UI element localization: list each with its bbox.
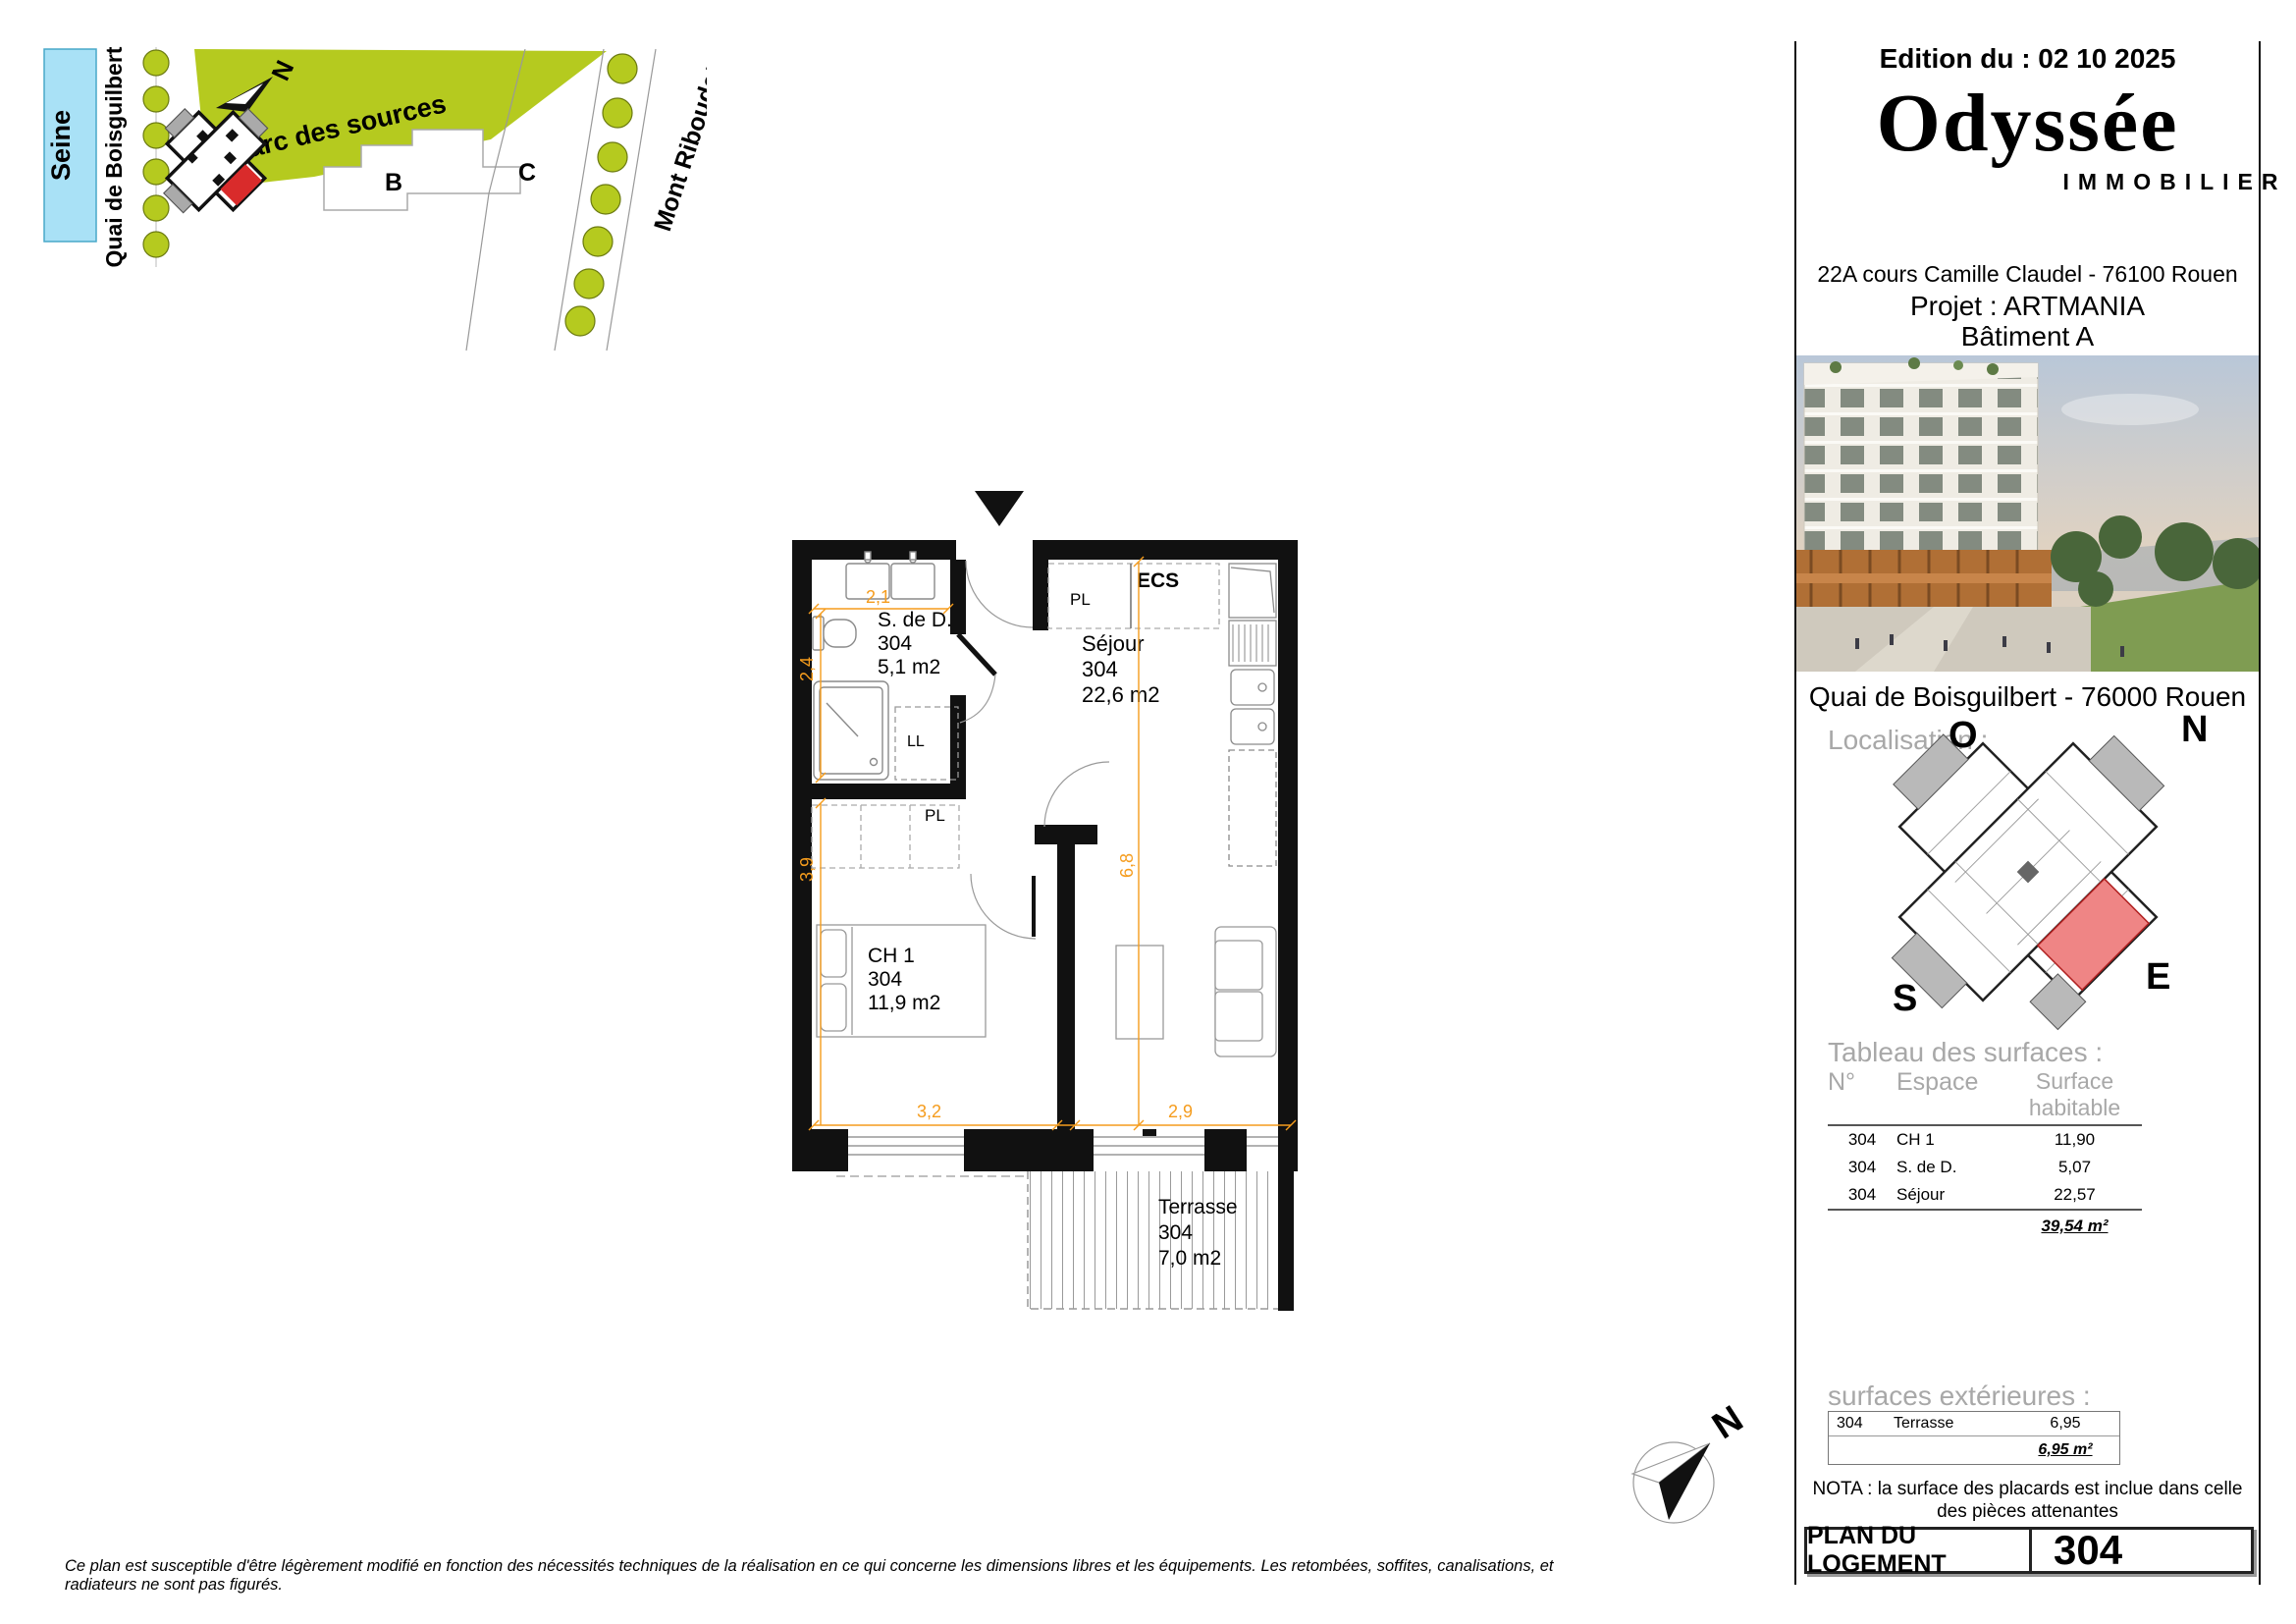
svg-text:7,0 m2: 7,0 m2 xyxy=(1158,1247,1221,1270)
svg-text:22,6 m2: 22,6 m2 xyxy=(1082,682,1160,707)
exterieures-total: 6,95 m² xyxy=(2011,1441,2119,1459)
slider-handle xyxy=(1143,1129,1156,1136)
svg-text:304: 304 xyxy=(868,968,902,991)
coffee-table xyxy=(1116,946,1163,1039)
surfaces-title: Tableau des surfaces : xyxy=(1828,1037,2103,1068)
dimension-labels: 2,1 2,4 3,9 6,8 3,2 2,9 xyxy=(797,587,1193,1121)
terrasse-area xyxy=(1028,1171,1278,1309)
svg-text:6,8: 6,8 xyxy=(1117,853,1137,878)
svg-text:Terrasse: Terrasse xyxy=(1158,1196,1238,1218)
col-espace: Espace xyxy=(1896,1068,2009,1121)
compass-n-label: N xyxy=(1705,1398,1750,1447)
sofa xyxy=(1215,927,1276,1056)
tree-row-right xyxy=(565,54,637,336)
agency-logo-sub: IMMOBILIER xyxy=(1796,169,2296,195)
table-row: 304 CH 1 11,90 xyxy=(1828,1126,2142,1154)
floor-plan-document: Seine Quai de Boisguilbert Parc des sour… xyxy=(0,0,2296,1624)
edition-date: Edition du : 02 10 2025 xyxy=(1796,43,2259,75)
svg-text:3,9: 3,9 xyxy=(797,857,817,882)
localisation-plan xyxy=(1863,713,2221,1032)
exterieures-title: surfaces extérieures : xyxy=(1828,1380,2091,1412)
kitchen-units xyxy=(1229,564,1276,866)
disclaimer-text: Ce plan est susceptible d'être légèremen… xyxy=(65,1557,1596,1595)
building-name: Bâtiment A xyxy=(1796,321,2259,352)
svg-text:11,9 m2: 11,9 m2 xyxy=(868,992,940,1014)
building-photo xyxy=(1796,355,2259,672)
building-b-label: B xyxy=(385,169,402,196)
sejour-label: Séjour 304 22,6 m2 xyxy=(1082,631,1160,707)
exterieures-table: 304 Terrasse 6,95 6,95 m² xyxy=(1828,1411,2120,1465)
svg-text:304: 304 xyxy=(878,632,912,655)
surfaces-table: N° Espace Surface habitable 304 CH 1 11,… xyxy=(1828,1068,2142,1242)
surfaces-header: N° Espace Surface habitable xyxy=(1828,1068,2142,1126)
mont-riboudet-label: Mont Riboudet xyxy=(649,62,707,235)
agency-logo: Odyssée xyxy=(1796,82,2259,165)
ecs-label: ECS xyxy=(1137,569,1179,592)
col-surface: Surface habitable xyxy=(2009,1068,2140,1121)
title-block-label: PLAN DU LOGEMENT xyxy=(1807,1530,2029,1571)
surfaces-total-row: 39,54 m² xyxy=(1828,1209,2142,1242)
svg-text:3,2: 3,2 xyxy=(917,1102,941,1121)
svg-text:304: 304 xyxy=(1158,1221,1193,1244)
pl-hall-label: PL xyxy=(925,806,945,825)
svg-text:Séjour: Séjour xyxy=(1082,631,1145,656)
col-num: N° xyxy=(1828,1068,1896,1121)
table-row: 304 S. de D. 5,07 xyxy=(1828,1154,2142,1181)
ll-label: LL xyxy=(907,733,925,750)
title-block-number: 304 xyxy=(2029,1530,2251,1571)
sdd-label: S. de D. 304 5,1 m2 xyxy=(878,609,952,678)
surfaces-total: 39,54 m² xyxy=(2009,1217,2140,1236)
svg-text:CH 1: CH 1 xyxy=(868,945,915,967)
title-block: PLAN DU LOGEMENT 304 xyxy=(1804,1527,2254,1574)
entry-arrow-icon xyxy=(975,491,1024,526)
project-name: Projet : ARTMANIA xyxy=(1796,291,2259,322)
nota-text: NOTA : la surface des placards est inclu… xyxy=(1796,1478,2259,1523)
panel-right-border xyxy=(2259,41,2261,1585)
exterieures-total-row: 6,95 m² xyxy=(1829,1436,2119,1464)
washing-machine xyxy=(895,707,958,780)
svg-text:2,9: 2,9 xyxy=(1168,1102,1193,1121)
agency-address: 22A cours Camille Claudel - 76100 Rouen xyxy=(1796,261,2259,288)
apartment-floor-plan: Terrasse 304 7,0 m2 LL S. de D. 304 5,1 xyxy=(787,489,1322,1319)
svg-text:2,4: 2,4 xyxy=(797,657,817,681)
plan-compass: N xyxy=(1620,1389,1777,1546)
building-c-label: C xyxy=(518,159,536,187)
site-map: Seine Quai de Boisguilbert Parc des sour… xyxy=(29,22,707,355)
quai-label: Quai de Boisguilbert xyxy=(101,46,127,267)
svg-text:2,1: 2,1 xyxy=(866,587,890,607)
svg-text:5,1 m2: 5,1 m2 xyxy=(878,656,940,678)
svg-text:S. de D.: S. de D. xyxy=(878,609,952,631)
svg-text:304: 304 xyxy=(1082,657,1118,681)
seine-label: Seine xyxy=(46,110,76,181)
table-row: 304 Terrasse 6,95 xyxy=(1829,1412,2119,1436)
table-row: 304 Séjour 22,57 xyxy=(1828,1181,2142,1209)
pl-sejour-label: PL xyxy=(1070,590,1091,609)
